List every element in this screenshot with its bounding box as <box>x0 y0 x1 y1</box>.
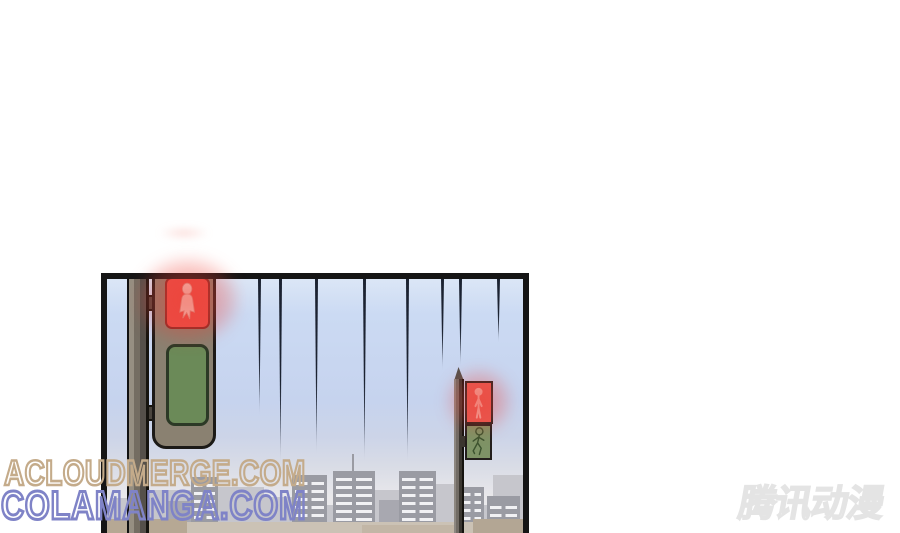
red-light-right <box>465 381 493 424</box>
pedestrian-standing-icon <box>169 280 207 327</box>
street-block <box>362 525 457 533</box>
traffic-pole-right <box>454 379 464 533</box>
street-block <box>473 519 523 533</box>
comic-panel <box>101 273 529 533</box>
red-light-left <box>165 279 210 329</box>
traffic-pole-left <box>127 279 149 533</box>
panel-scene <box>107 279 523 533</box>
faint-glow-smudge <box>158 227 210 239</box>
green-light-left <box>166 344 209 426</box>
pedestrian-walking-icon <box>467 426 490 458</box>
tencent-comics-logo: 腾讯动漫 <box>735 473 889 527</box>
green-light-right <box>465 424 492 460</box>
page-background: ACLOUDMERGE.COM COLAMANGA.COM 腾讯动漫 <box>0 0 900 533</box>
signal-box-left <box>152 279 216 449</box>
pedestrian-standing-icon-small <box>467 383 491 422</box>
